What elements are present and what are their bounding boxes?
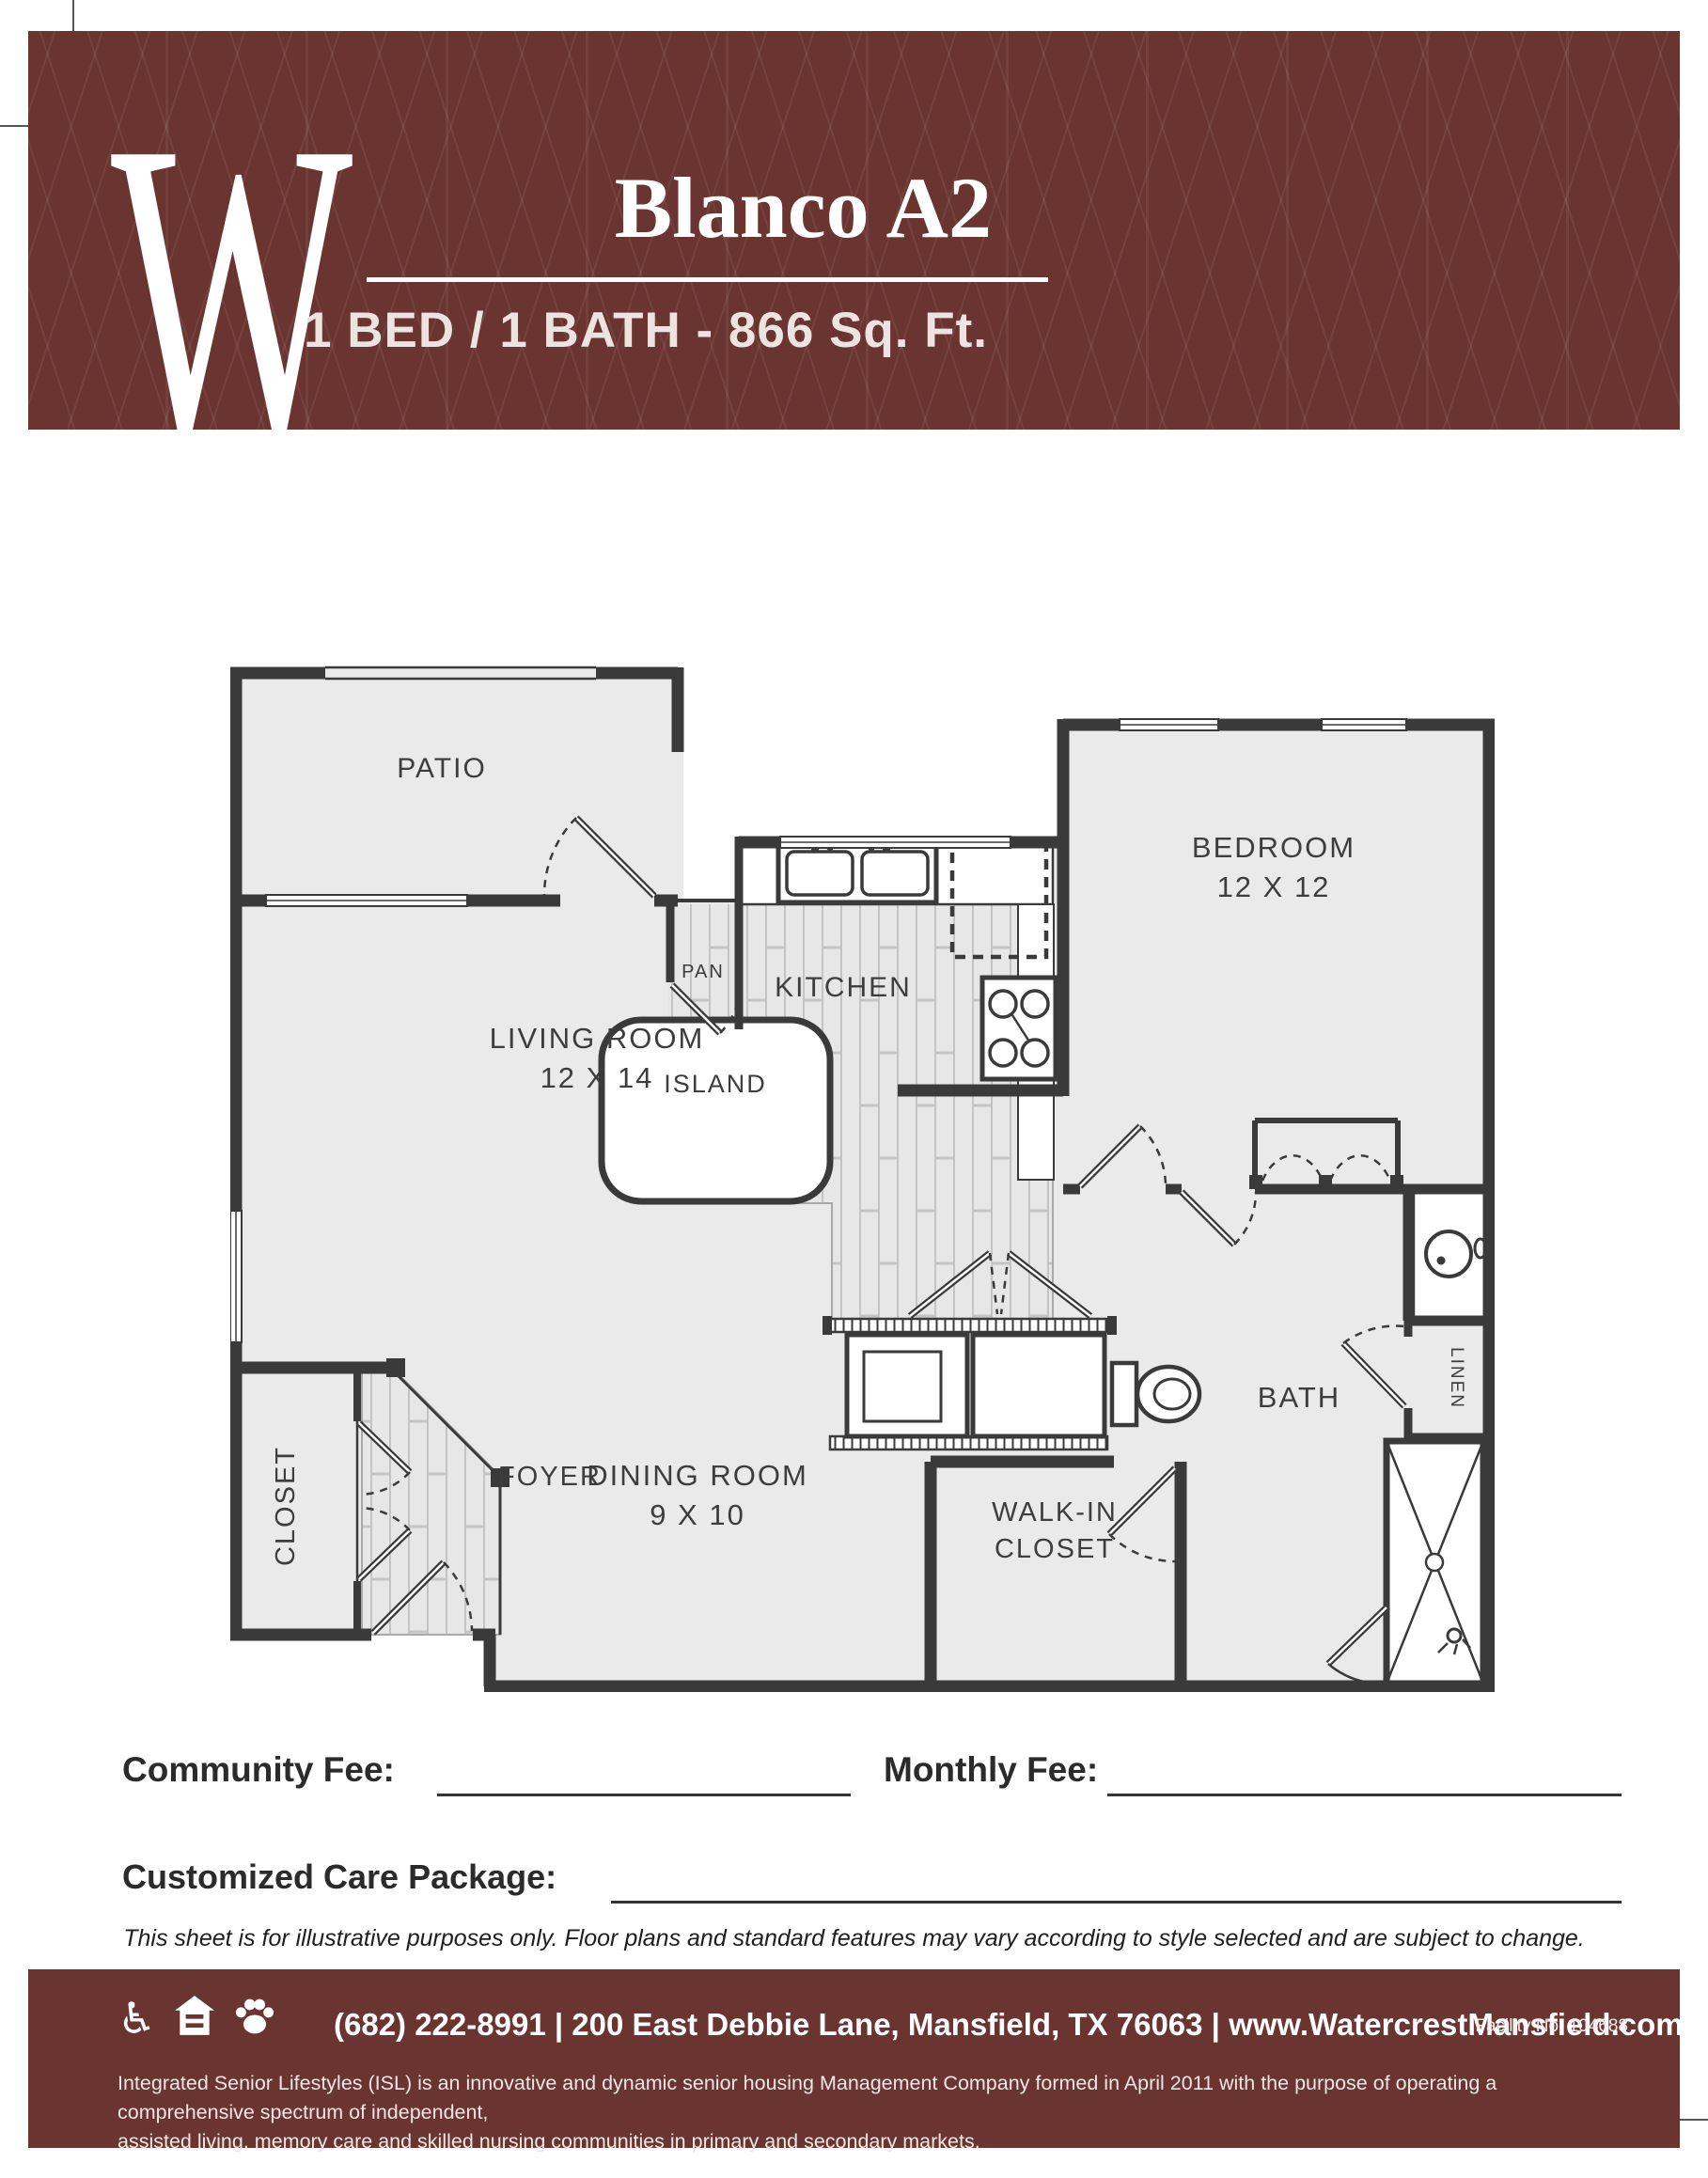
footer-description: Integrated Senior Lifestyles (ISL) is an… bbox=[118, 2069, 1528, 2157]
room-label-dining: DINING ROOM bbox=[587, 1459, 808, 1492]
room-label-kitchen: KITCHEN bbox=[775, 972, 912, 1003]
room-label-walkin-1: WALK-IN bbox=[992, 1497, 1118, 1528]
care-package-label: Customized Care Package: bbox=[122, 1857, 556, 1897]
footer-icons: ♿ bbox=[118, 1994, 276, 2042]
room-label-living: LIVING ROOM bbox=[490, 1022, 705, 1055]
facility-number: Facility No. 104688 bbox=[1475, 2016, 1628, 2037]
room-label-linen: LINEN bbox=[1447, 1347, 1466, 1409]
room-label-walkin-2: CLOSET bbox=[995, 1534, 1115, 1564]
room-label-bedroom: BEDROOM bbox=[1192, 831, 1355, 864]
room-label-patio: PATIO bbox=[397, 753, 487, 784]
wheelchair-icon: ♿ bbox=[118, 1997, 156, 2040]
disclaimer-text: This sheet is for illustrative purposes … bbox=[0, 1925, 1708, 1952]
patio-floor bbox=[230, 667, 683, 901]
vanity-sink bbox=[1413, 1192, 1488, 1318]
flyer-page: W Blanco A2 1 BED / 1 BATH - 866 Sq. Ft. bbox=[0, 0, 1708, 2178]
toilet bbox=[1112, 1363, 1199, 1425]
title-divider bbox=[367, 277, 1048, 282]
room-dims-dining: 9 X 10 bbox=[650, 1498, 745, 1531]
brand-logo: W bbox=[111, 123, 353, 468]
room-label-island: ISLAND bbox=[664, 1070, 767, 1098]
room-label-bath: BATH bbox=[1258, 1381, 1340, 1414]
community-fee-blank[interactable] bbox=[437, 1756, 851, 1796]
community-fee-label: Community Fee: bbox=[122, 1750, 395, 1790]
floor-plan: PATIO LIVING ROOM 12 X 14 KITCHEN ISLAND… bbox=[230, 658, 1495, 1692]
monthly-fee-label: Monthly Fee: bbox=[884, 1750, 1098, 1790]
page-title: Blanco A2 bbox=[615, 165, 992, 251]
kitchen-counter-right bbox=[1018, 904, 1054, 978]
room-dims-bedroom: 12 X 12 bbox=[1217, 870, 1331, 903]
range-stove bbox=[982, 978, 1056, 1079]
equal-housing-icon bbox=[173, 1994, 216, 2042]
room-label-pantry: PAN bbox=[682, 962, 725, 982]
care-package-blank[interactable] bbox=[611, 1863, 1622, 1904]
page-subtitle: 1 BED / 1 BATH - 866 Sq. Ft. bbox=[304, 302, 988, 359]
header-banner: W Blanco A2 1 BED / 1 BATH - 866 Sq. Ft. bbox=[28, 31, 1680, 430]
footer-description-line1: Integrated Senior Lifestyles (ISL) is an… bbox=[118, 2072, 1496, 2123]
crop-mark bbox=[0, 0, 2, 25]
paw-icon bbox=[233, 1994, 276, 2042]
monthly-fee-blank[interactable] bbox=[1107, 1756, 1622, 1796]
kitchen-sink bbox=[778, 843, 936, 902]
room-dims-living: 12 X 14 bbox=[541, 1061, 654, 1094]
footer-banner: ♿ (682) 222-8991 | 200 East Debbie Lane bbox=[28, 1969, 1680, 2148]
room-label-foyer: FOYER bbox=[498, 1462, 602, 1492]
room-label-entry-closet: CLOSET bbox=[271, 1446, 301, 1566]
footer-description-line2: assisted living, memory care and skilled… bbox=[118, 2130, 980, 2153]
